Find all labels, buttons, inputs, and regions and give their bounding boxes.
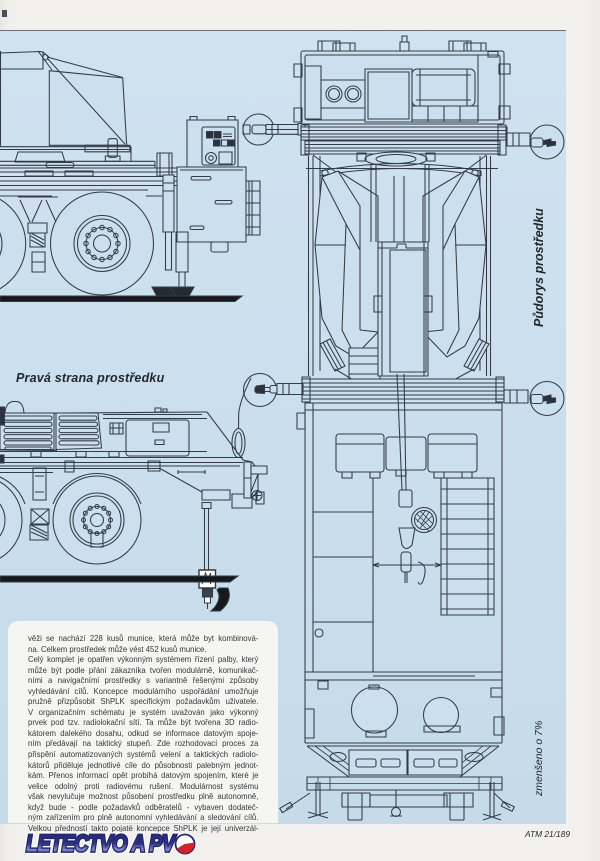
svg-text:LETECTVO A PV: LETECTVO A PV xyxy=(26,830,177,857)
